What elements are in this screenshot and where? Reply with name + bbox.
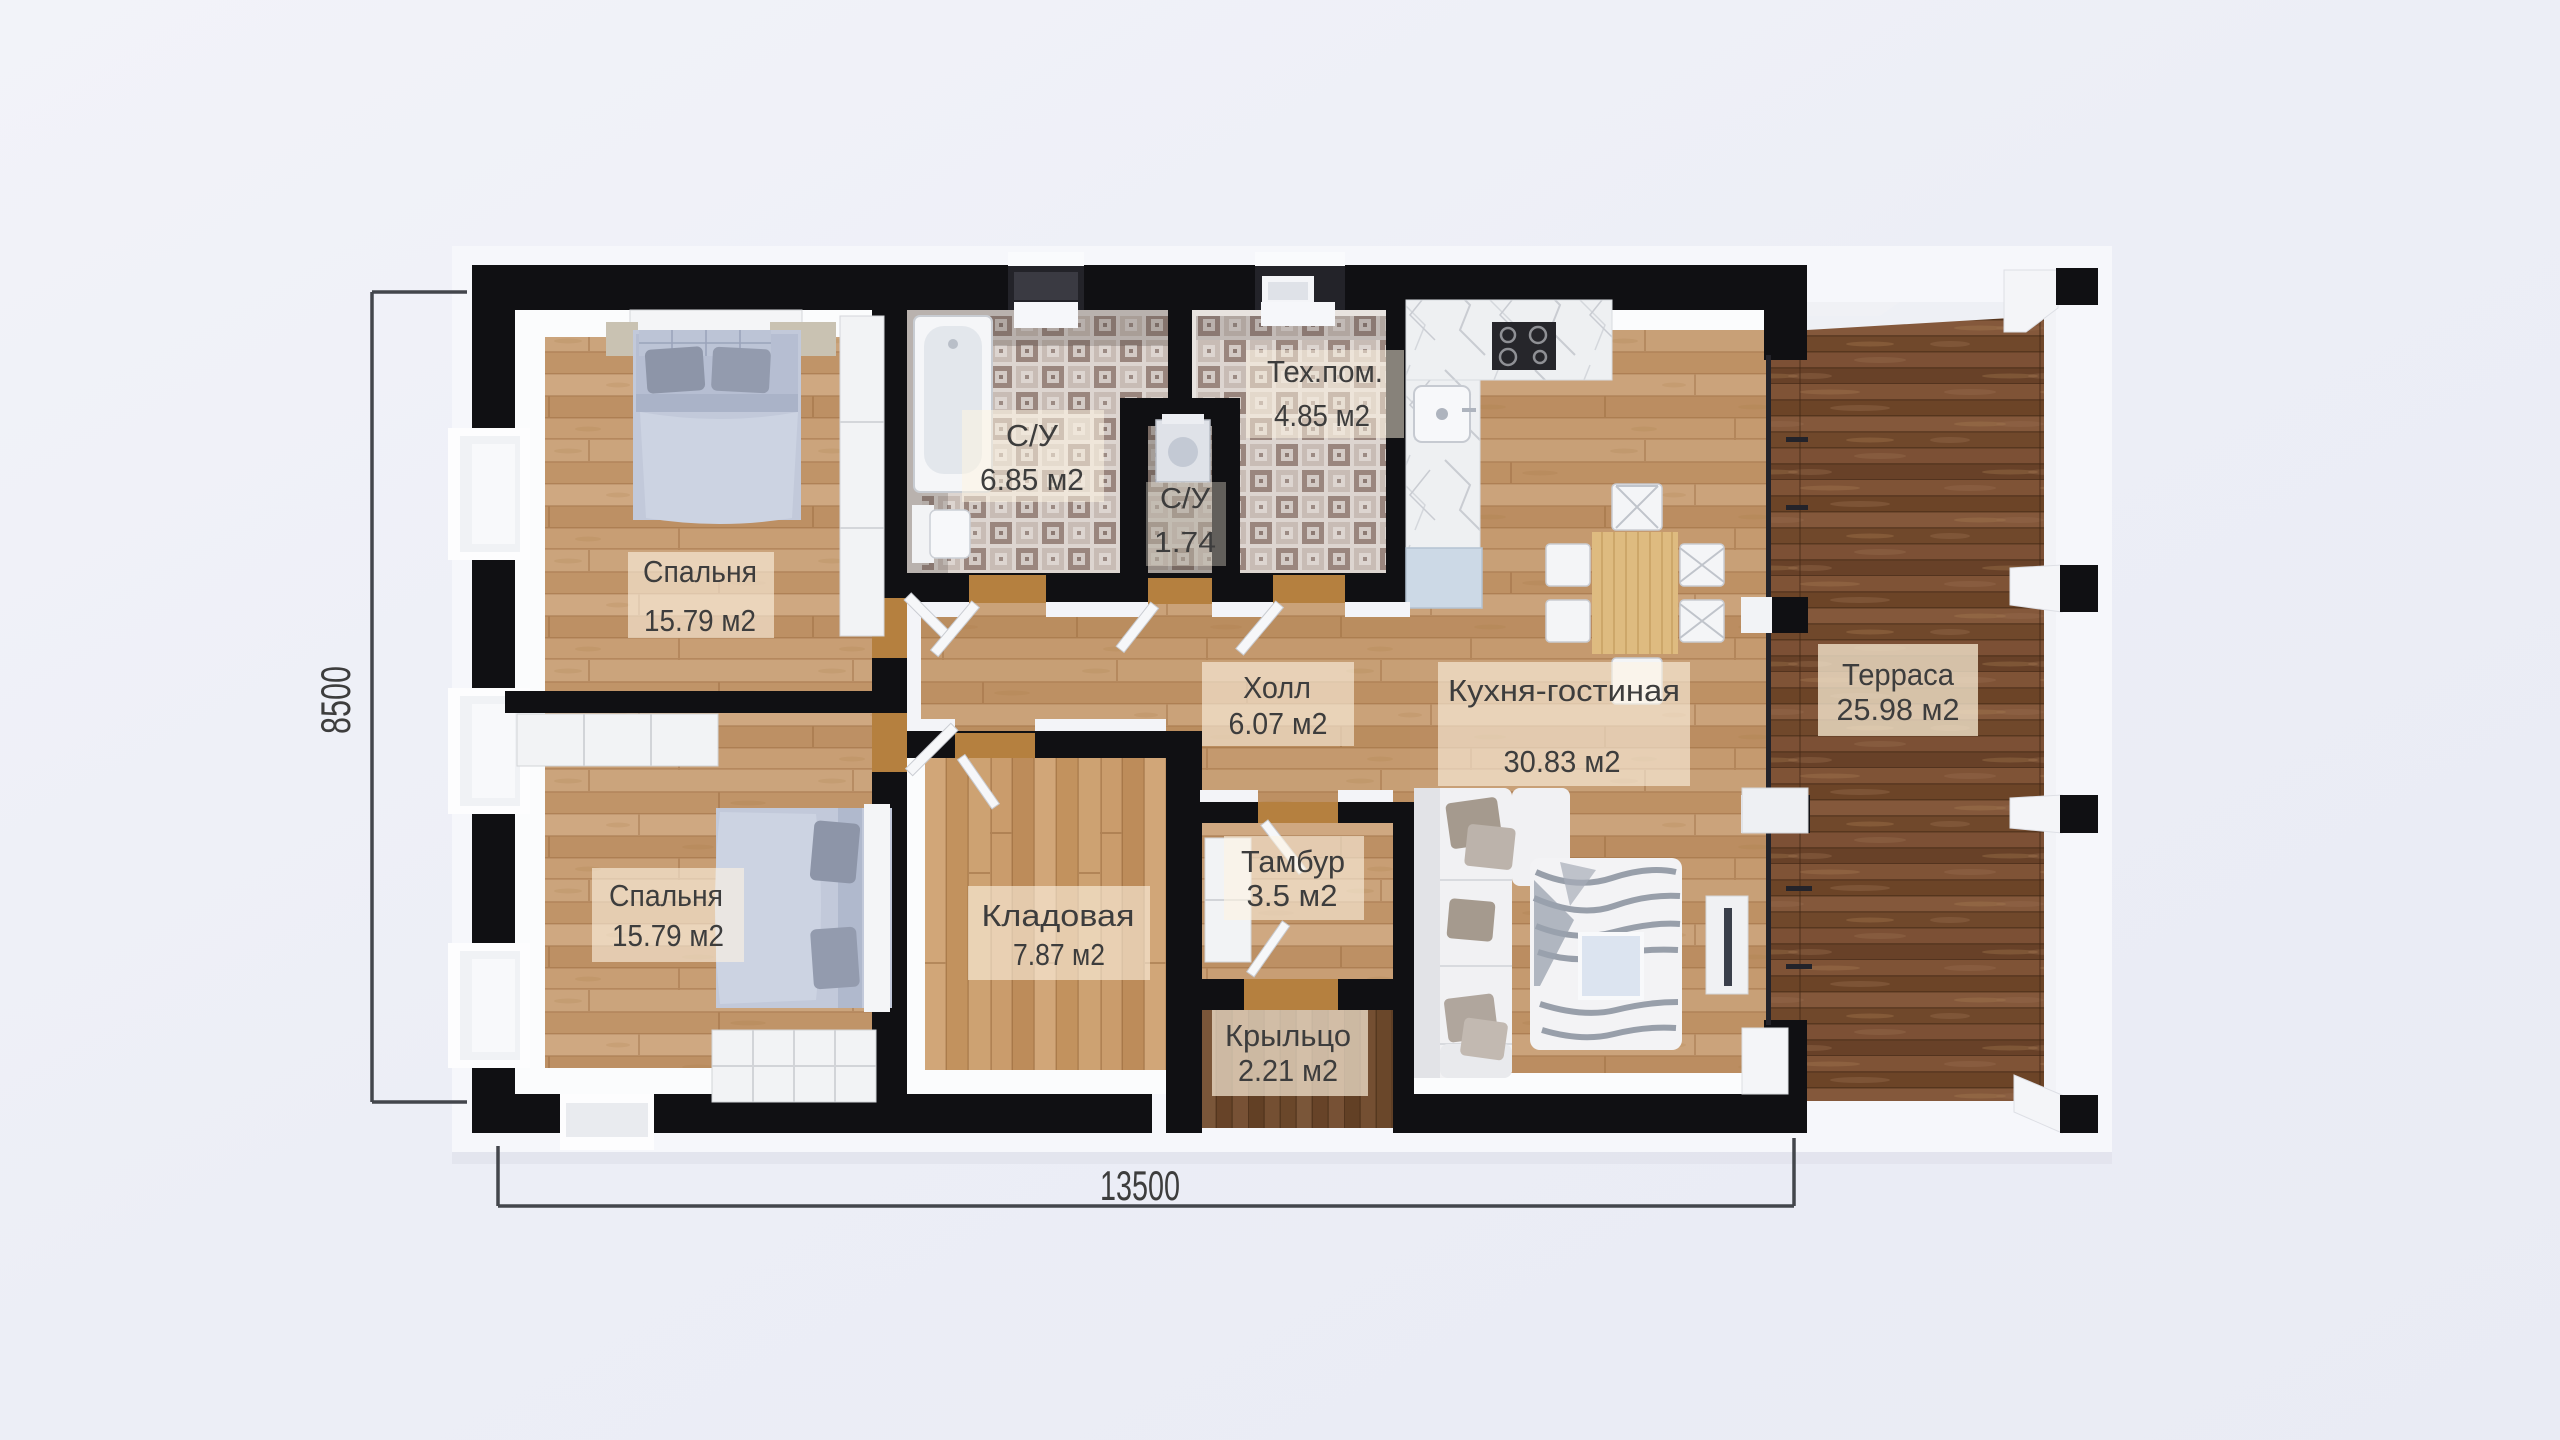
svg-text:1.74: 1.74 <box>1154 527 1216 559</box>
svg-text:Спальня: Спальня <box>609 878 723 913</box>
svg-text:3.5 м2: 3.5 м2 <box>1247 878 1338 913</box>
svg-text:7.87 м2: 7.87 м2 <box>1013 937 1105 972</box>
svg-text:Терраса: Терраса <box>1842 657 1955 692</box>
svg-text:15.79 м2: 15.79 м2 <box>644 603 756 638</box>
svg-text:Спальня: Спальня <box>643 554 757 589</box>
svg-text:С/У: С/У <box>1006 418 1058 453</box>
svg-text:13500: 13500 <box>1100 1162 1180 1209</box>
svg-text:Кухня-гостиная: Кухня-гостиная <box>1448 673 1680 708</box>
svg-text:6.07 м2: 6.07 м2 <box>1229 706 1328 741</box>
svg-text:25.98 м2: 25.98 м2 <box>1837 692 1960 727</box>
svg-text:4.85 м2: 4.85 м2 <box>1274 398 1370 433</box>
svg-text:15.79 м2: 15.79 м2 <box>612 918 724 953</box>
svg-text:С/У: С/У <box>1160 483 1211 515</box>
svg-text:Кладовая: Кладовая <box>982 898 1135 933</box>
svg-text:Крыльцо: Крыльцо <box>1225 1018 1351 1053</box>
svg-text:2.21 м2: 2.21 м2 <box>1238 1053 1338 1088</box>
svg-text:Холл: Холл <box>1243 670 1311 705</box>
svg-text:Тех.пом.: Тех.пом. <box>1267 354 1383 389</box>
svg-text:Тамбур: Тамбур <box>1241 844 1345 879</box>
svg-text:8500: 8500 <box>312 666 359 734</box>
svg-text:6.85 м2: 6.85 м2 <box>980 462 1084 497</box>
svg-text:30.83 м2: 30.83 м2 <box>1504 744 1621 779</box>
